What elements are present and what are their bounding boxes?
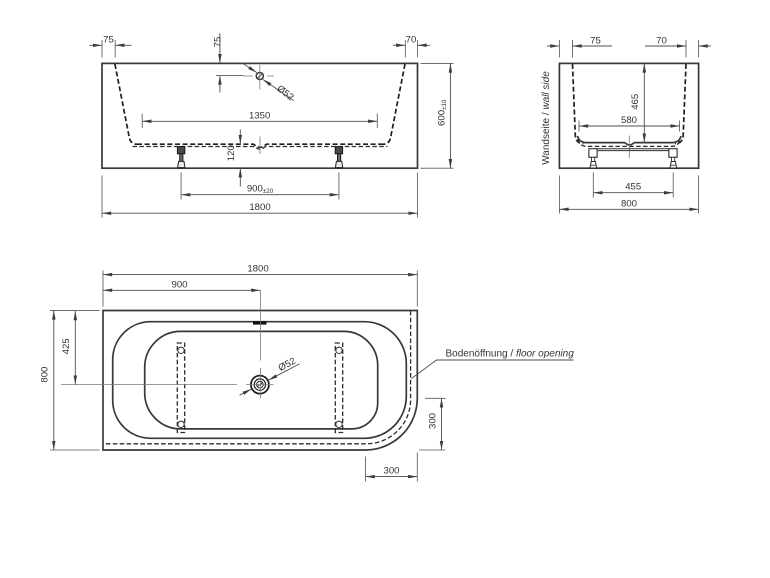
svg-text:425: 425 bbox=[61, 338, 72, 354]
svg-text:580: 580 bbox=[621, 115, 637, 126]
svg-text:75: 75 bbox=[213, 37, 224, 48]
svg-text:300: 300 bbox=[427, 413, 438, 429]
svg-text:70: 70 bbox=[656, 35, 667, 46]
svg-text:Wandseite / wall side: Wandseite / wall side bbox=[541, 71, 552, 165]
svg-text:1800: 1800 bbox=[249, 202, 270, 213]
svg-text:Bodenöffnung / floor opening: Bodenöffnung / floor opening bbox=[446, 349, 575, 360]
svg-text:120: 120 bbox=[226, 145, 237, 161]
svg-text:800: 800 bbox=[40, 367, 51, 383]
svg-text:70: 70 bbox=[406, 35, 417, 46]
svg-text:1350: 1350 bbox=[249, 110, 270, 121]
svg-text:465: 465 bbox=[630, 94, 641, 110]
svg-text:75: 75 bbox=[590, 35, 601, 46]
svg-text:800: 800 bbox=[621, 198, 637, 209]
svg-text:75: 75 bbox=[103, 35, 114, 46]
svg-text:1800: 1800 bbox=[247, 264, 268, 275]
svg-text:300: 300 bbox=[383, 466, 399, 477]
svg-text:455: 455 bbox=[625, 182, 641, 193]
svg-text:900: 900 bbox=[171, 279, 187, 290]
